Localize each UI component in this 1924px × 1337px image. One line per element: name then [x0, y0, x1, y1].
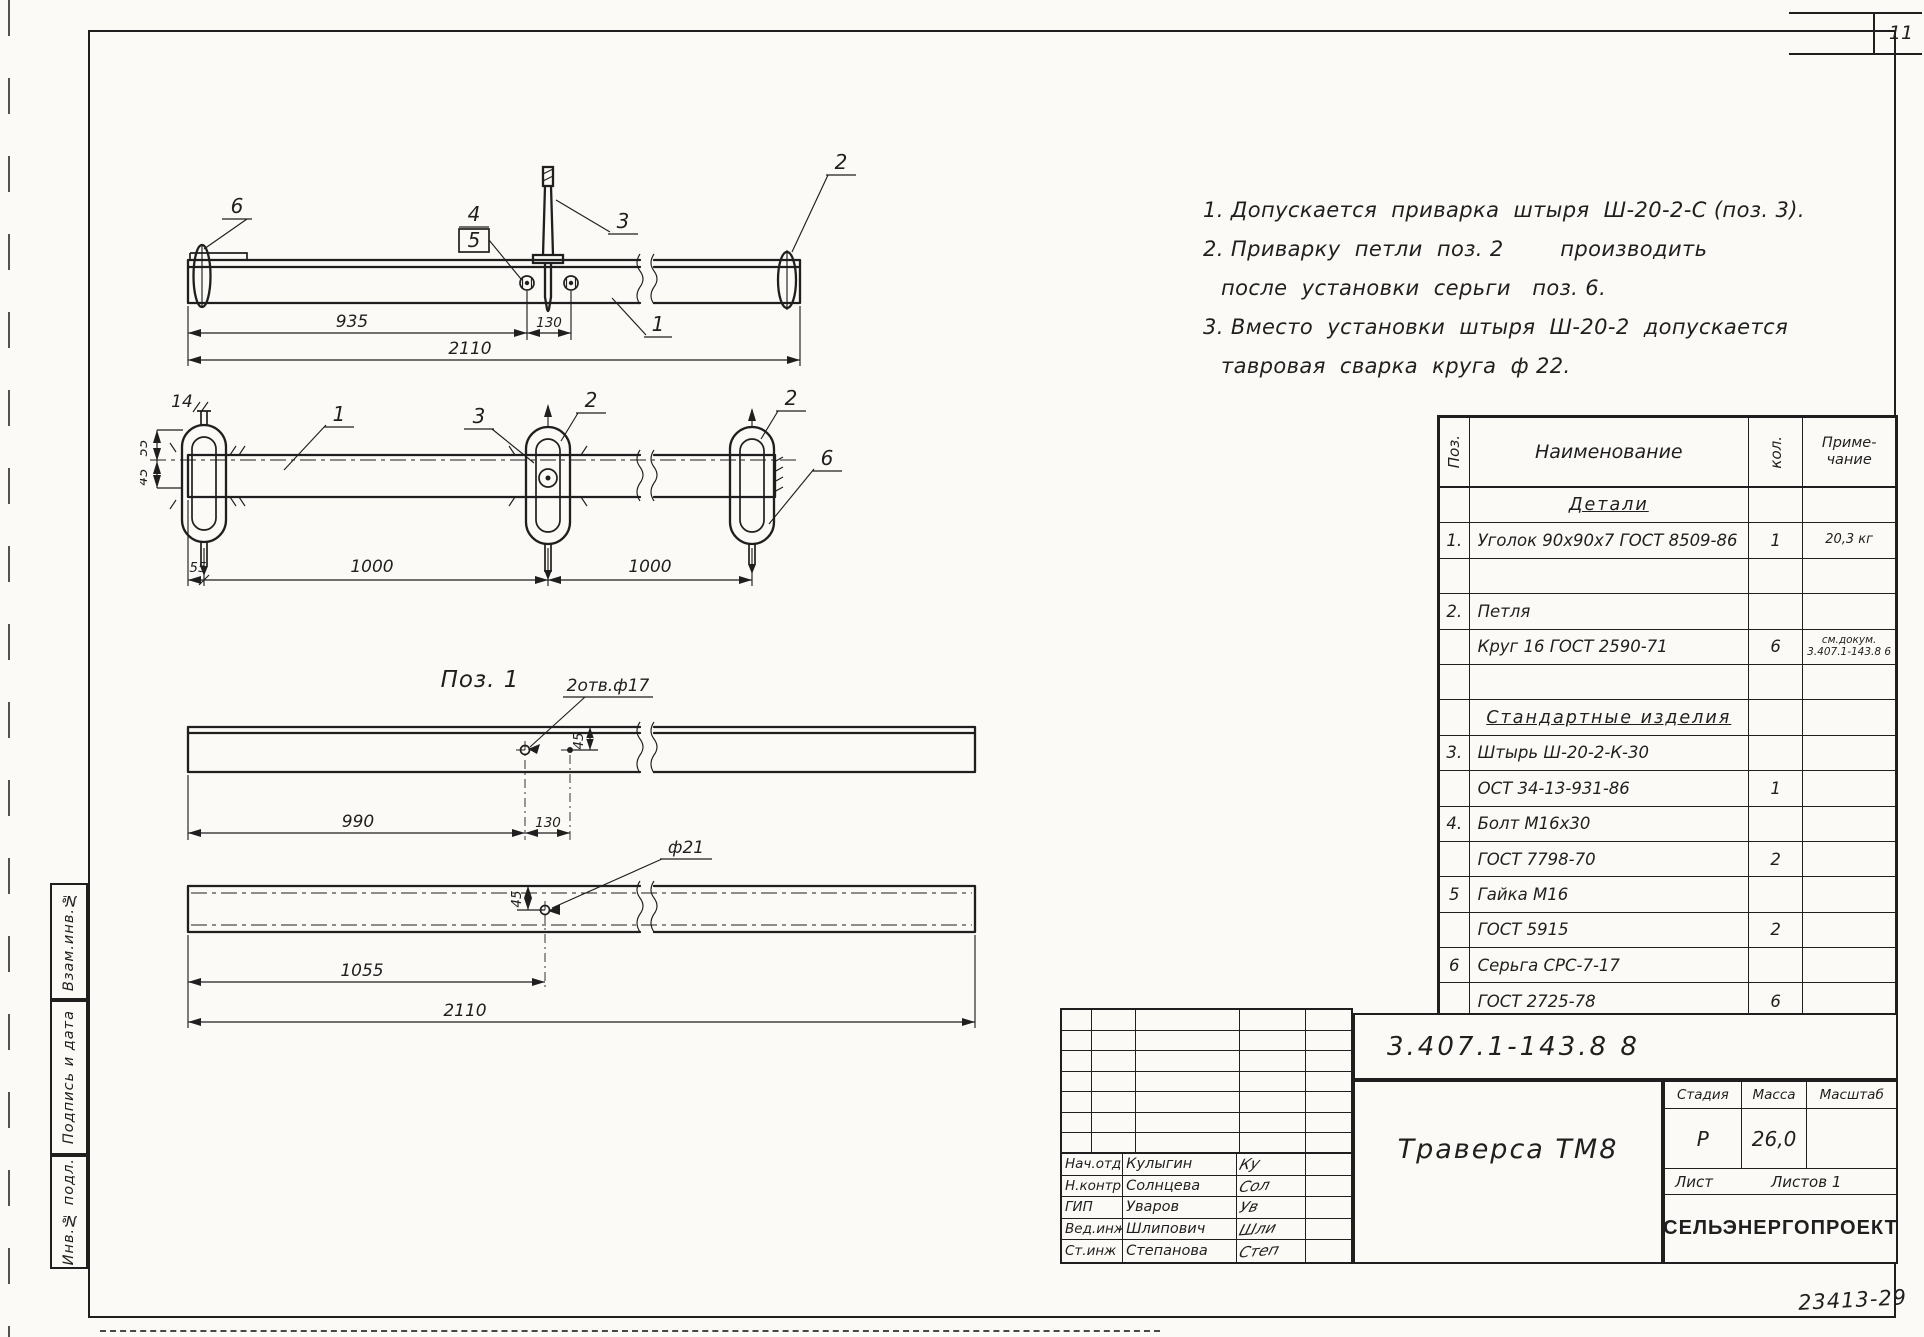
- revision-cell: [1306, 1113, 1351, 1133]
- parts-cell: [1749, 807, 1803, 841]
- title-block-right: Стадия Масса Масштаб Р 26,0 Лист Листов …: [1663, 1080, 1898, 1264]
- parts-cell: ГОСТ 5915: [1470, 913, 1749, 947]
- drawing-sheet: 11 Взам.инв.№ Подпись и дата Инв.№ подл.…: [0, 0, 1924, 1337]
- parts-cell: [1749, 877, 1803, 911]
- dim-14: 14: [171, 392, 193, 412]
- parts-cell: [1470, 559, 1749, 593]
- traverse-bar: [188, 450, 775, 501]
- signature-cell: [1306, 1154, 1351, 1175]
- dim-935: 935: [336, 312, 368, 332]
- parts-cell: Болт М16х30: [1470, 807, 1749, 841]
- revision-cell: [1136, 1113, 1240, 1133]
- pin-icon: [533, 167, 563, 311]
- callout-3: 3: [617, 209, 630, 233]
- revision-cell: [1240, 1010, 1306, 1030]
- parts-cell: 6: [1440, 948, 1470, 982]
- parts-cell: [1803, 594, 1895, 628]
- parts-cell: 1.: [1440, 523, 1470, 557]
- dim-130: 130: [536, 315, 562, 331]
- loop-right-icon: [730, 408, 783, 574]
- dim-2110: 2110: [443, 1001, 486, 1021]
- page-edge-perforation: [8, 0, 10, 1337]
- parts-cell: [1749, 488, 1803, 522]
- parts-cell: [1749, 700, 1803, 734]
- callout-2: 2: [585, 388, 598, 412]
- parts-row: Стандартные изделия: [1440, 700, 1895, 735]
- revision-cell: [1136, 1010, 1240, 1030]
- scale-value: [1807, 1109, 1896, 1168]
- parts-cell: Стандартные изделия: [1470, 700, 1749, 734]
- signature-row: Вед.инж.ШлиповичШли: [1062, 1219, 1351, 1241]
- parts-cell: [1440, 842, 1470, 876]
- revision-cell: [1062, 1133, 1092, 1154]
- parts-cell: Круг 16 ГОСТ 2590-71: [1470, 630, 1749, 664]
- revision-cell: [1062, 1010, 1092, 1030]
- stage-value: Р: [1665, 1109, 1742, 1168]
- parts-cell: [1803, 771, 1895, 805]
- revision-cell: [1136, 1072, 1240, 1092]
- traverse-bar: [188, 253, 800, 304]
- dim-55: 55: [189, 560, 206, 576]
- parts-row: 6Серьга СРС-7-17: [1440, 948, 1895, 983]
- parts-cell: [1440, 913, 1470, 947]
- revision-row: [1062, 1113, 1351, 1134]
- parts-cell: [1440, 665, 1470, 699]
- callout-6: 6: [231, 194, 244, 218]
- signature-cell: Нач.отд: [1062, 1154, 1123, 1175]
- scan-edge-artifact: [100, 1330, 1160, 1332]
- parts-row: ГОСТ 7798-702: [1440, 842, 1895, 877]
- dim-55-vert: 55: [140, 439, 151, 456]
- revision-cell: [1240, 1092, 1306, 1112]
- parts-cell: [1440, 700, 1470, 734]
- signature-cell: Солнцева: [1123, 1176, 1236, 1197]
- parts-row: 2.Петля: [1440, 594, 1895, 629]
- parts-table-rows: Детали1.Уголок 90х90х7 ГОСТ 8509-86120,3…: [1440, 488, 1895, 1019]
- angle-bar-bottom: [188, 881, 975, 932]
- parts-cell: [1749, 594, 1803, 628]
- callout-5: 5: [468, 228, 481, 252]
- revision-cell: [1062, 1072, 1092, 1092]
- parts-cell: [1470, 665, 1749, 699]
- traverse-drawing: 6 4 5 3 2 1 935 130 2110: [140, 140, 1020, 1040]
- sheet-row: Лист Листов 1: [1665, 1169, 1896, 1195]
- parts-row: 1.Уголок 90х90х7 ГОСТ 8509-86120,3 кг: [1440, 523, 1895, 558]
- mass-label: Масса: [1742, 1082, 1808, 1108]
- parts-row: 3.Штырь Ш-20-2-К-30: [1440, 736, 1895, 771]
- revision-grid: [1060, 1008, 1353, 1154]
- parts-cell: [1803, 559, 1895, 593]
- parts-row: ГОСТ 59152: [1440, 913, 1895, 948]
- parts-cell: Петля: [1470, 594, 1749, 628]
- parts-cell: [1803, 913, 1895, 947]
- corner-divider: [1873, 14, 1875, 53]
- revision-row: [1062, 1072, 1351, 1093]
- scale-label: Масштаб: [1807, 1082, 1896, 1108]
- parts-cell: [1440, 630, 1470, 664]
- detail-view: Поз. 1 2отв.ф17 45 990 130: [188, 667, 975, 1028]
- callout-6: 6: [821, 446, 834, 470]
- parts-cell: 2.: [1440, 594, 1470, 628]
- note-line: после установки серьги поз. 6.: [1203, 276, 1843, 300]
- parts-cell: ГОСТ 7798-70: [1470, 842, 1749, 876]
- revision-cell: [1092, 1010, 1136, 1030]
- dim-1055: 1055: [340, 961, 383, 981]
- shackle-icon: [194, 245, 211, 309]
- signature-cell: Степанова: [1123, 1240, 1236, 1262]
- revision-row: [1062, 1051, 1351, 1072]
- revision-cell: [1306, 1031, 1351, 1051]
- loop-icon: [778, 250, 796, 310]
- dim-45-vert: 45: [140, 468, 151, 485]
- signature-cell: Ст.инж: [1062, 1240, 1123, 1262]
- callout-2: 2: [835, 150, 848, 174]
- revision-cell: [1136, 1031, 1240, 1051]
- dim-1000: 1000: [628, 557, 671, 577]
- doc-number-cell: 3.407.1-143.8 8: [1353, 1013, 1898, 1080]
- parts-row: [1440, 559, 1895, 594]
- bolt-icon: [520, 276, 578, 290]
- parts-cell: [1803, 665, 1895, 699]
- parts-cell: [1803, 842, 1895, 876]
- parts-cell: 6: [1749, 630, 1803, 664]
- parts-cell: 4.: [1440, 807, 1470, 841]
- signature-cell: Кулыгин: [1123, 1154, 1236, 1175]
- signature-cell: Вед.инж.: [1062, 1219, 1123, 1240]
- signature-cell: Степ: [1237, 1240, 1306, 1262]
- loop-left-icon: [170, 411, 245, 576]
- dim-1000: 1000: [350, 557, 393, 577]
- margin-stamp-vzam: Взам.инв.№: [50, 883, 88, 1000]
- detail-label: Поз. 1: [441, 667, 520, 693]
- parts-cell: 3.: [1440, 736, 1470, 770]
- dim-45: 45: [509, 890, 525, 907]
- revision-cell: [1240, 1031, 1306, 1051]
- mass-value: 26,0: [1742, 1109, 1808, 1168]
- product-title-cell: Траверса ТМ8: [1353, 1080, 1663, 1264]
- parts-cell: [1803, 807, 1895, 841]
- stage-mass-scale-header: Стадия Масса Масштаб: [1665, 1082, 1896, 1109]
- parts-cell: Штырь Ш-20-2-К-30: [1470, 736, 1749, 770]
- parts-cell: [1440, 559, 1470, 593]
- parts-cell: 20,3 кг: [1803, 523, 1895, 557]
- sheets-label: Листов 1: [1713, 1173, 1841, 1191]
- dia-note: ф21: [668, 838, 704, 858]
- signature-row: Нач.отдКулыгинКу: [1062, 1154, 1351, 1176]
- callout-4: 4: [468, 202, 481, 226]
- parts-cell: ОСТ 34-13-931-86: [1470, 771, 1749, 805]
- note-line: тавровая сварка круга ф 22.: [1203, 354, 1843, 378]
- revision-cell: [1092, 1092, 1136, 1112]
- parts-cell: 2: [1749, 913, 1803, 947]
- doc-number: 3.407.1-143.8 8: [1355, 1032, 1640, 1062]
- parts-cell: [1803, 700, 1895, 734]
- parts-row: Детали: [1440, 488, 1895, 523]
- signature-row: Н.контр.СолнцеваСол: [1062, 1176, 1351, 1198]
- parts-cell: 2: [1749, 842, 1803, 876]
- revision-cell: [1240, 1051, 1306, 1071]
- revision-cell: [1306, 1133, 1351, 1154]
- revision-cell: [1062, 1113, 1092, 1133]
- callout-2: 2: [785, 386, 798, 410]
- parts-row: 5Гайка М16: [1440, 877, 1895, 912]
- callouts-front: 6 4 5 3 2 1: [204, 150, 856, 337]
- holes-note: 2отв.ф17: [567, 676, 650, 696]
- revision-cell: [1306, 1010, 1351, 1030]
- parts-table-header: Поз. Наименование кол. Приме-чание: [1440, 418, 1895, 488]
- revision-cell: [1240, 1133, 1306, 1154]
- parts-cell: Детали: [1470, 488, 1749, 522]
- dimensions-detail-top: 990 130: [188, 775, 570, 840]
- stage-label: Стадия: [1665, 1082, 1742, 1108]
- parts-cell: 5: [1440, 877, 1470, 911]
- parts-cell: см.докум.3.407.1-143.8 6: [1803, 630, 1895, 664]
- parts-cell: [1440, 771, 1470, 805]
- organization: СЕЛЬЭНЕРГОПРОЕКТ: [1665, 1195, 1896, 1262]
- signature-cell: Ку: [1237, 1154, 1306, 1175]
- callout-3: 3: [473, 404, 486, 428]
- signature-cell: Ув: [1237, 1197, 1306, 1218]
- dimensions-plan: 55 45 55 1000 1000: [140, 430, 752, 586]
- sheet-number-box: 11: [1789, 12, 1922, 55]
- parts-cell: Гайка М16: [1470, 877, 1749, 911]
- parts-cell: 1: [1749, 523, 1803, 557]
- revision-cell: [1240, 1113, 1306, 1133]
- revision-cell: [1092, 1133, 1136, 1154]
- parts-cell: [1803, 488, 1895, 522]
- revision-row: [1062, 1010, 1351, 1031]
- parts-cell: Серьга СРС-7-17: [1470, 948, 1749, 982]
- parts-cell: [1803, 736, 1895, 770]
- parts-table: Поз. Наименование кол. Приме-чание Детал…: [1437, 415, 1898, 1017]
- revision-cell: [1136, 1092, 1240, 1112]
- signature-cell: Уваров: [1123, 1197, 1236, 1218]
- revision-cell: [1062, 1051, 1092, 1071]
- note-line: 3. Вместо установки штыря Ш-20-2 допуска…: [1203, 315, 1843, 339]
- col-header-name: Наименование: [1470, 418, 1749, 486]
- parts-row: [1440, 665, 1895, 700]
- parts-cell: [1803, 877, 1895, 911]
- dim-2110: 2110: [448, 339, 491, 359]
- signature-cell: ГИП: [1062, 1197, 1123, 1218]
- sheet-label: Лист: [1665, 1173, 1713, 1191]
- signature-row: Ст.инжСтепановаСтеп: [1062, 1240, 1351, 1262]
- signature-cell: Шли: [1237, 1219, 1306, 1240]
- revision-cell: [1306, 1051, 1351, 1071]
- parts-cell: [1749, 948, 1803, 982]
- parts-row: Круг 16 ГОСТ 2590-716см.докум.3.407.1-14…: [1440, 630, 1895, 665]
- revision-cell: [1062, 1092, 1092, 1112]
- dim-45: 45: [571, 732, 587, 749]
- parts-cell: 1: [1749, 771, 1803, 805]
- plan-view: 14 1 3 2 2 6 55 45 55: [140, 386, 842, 586]
- revision-cell: [1136, 1051, 1240, 1071]
- margin-stamp-inv: Инв.№ подл.: [50, 1155, 88, 1269]
- parts-row: 4.Болт М16х30: [1440, 807, 1895, 842]
- revision-row: [1062, 1133, 1351, 1154]
- signature-cell: [1306, 1176, 1351, 1197]
- revision-cell: [1092, 1031, 1136, 1051]
- dim-990: 990: [342, 812, 374, 832]
- signature-cell: [1306, 1197, 1351, 1218]
- signature-cell: [1306, 1240, 1351, 1262]
- revision-cell: [1306, 1092, 1351, 1112]
- signature-cell: Сол: [1237, 1176, 1306, 1197]
- note-line: 2. Приварку петли поз. 2 производить: [1203, 237, 1843, 261]
- callout-1: 1: [652, 312, 665, 336]
- parts-cell: [1749, 736, 1803, 770]
- parts-cell: [1749, 665, 1803, 699]
- revision-cell: [1092, 1051, 1136, 1071]
- revision-cell: [1092, 1113, 1136, 1133]
- revision-cell: [1092, 1072, 1136, 1092]
- note-line: 1. Допускается приварка штыря Ш-20-2-С (…: [1203, 198, 1843, 222]
- parts-cell: [1803, 948, 1895, 982]
- signature-block: Нач.отдКулыгинКуН.контр.СолнцеваСолГИПУв…: [1060, 1152, 1353, 1264]
- front-view: 6 4 5 3 2 1 935 130 2110: [188, 150, 856, 366]
- margin-stamp-label: Взам.инв.№: [61, 891, 77, 991]
- signature-cell: Н.контр.: [1062, 1176, 1123, 1197]
- dim-130: 130: [535, 815, 561, 831]
- product-title: Траверса ТМ8: [1398, 1134, 1619, 1165]
- sheet-number: 11: [1881, 22, 1921, 44]
- revision-row: [1062, 1031, 1351, 1052]
- revision-row: [1062, 1092, 1351, 1113]
- col-header-qty: кол.: [1749, 418, 1803, 486]
- signature-cell: [1306, 1219, 1351, 1240]
- margin-stamp-label: Инв.№ подл.: [61, 1158, 77, 1265]
- margin-stamp-label: Подпись и дата: [61, 1010, 77, 1144]
- col-header-pos: Поз.: [1440, 418, 1470, 486]
- revision-cell: [1306, 1072, 1351, 1092]
- stage-mass-scale-values: Р 26,0: [1665, 1109, 1896, 1169]
- callout-1: 1: [333, 402, 346, 426]
- revision-cell: [1062, 1031, 1092, 1051]
- notes: 1. Допускается приварка штыря Ш-20-2-С (…: [1203, 198, 1843, 393]
- signature-cell: Шлипович: [1123, 1219, 1236, 1240]
- signature-row: ГИПУваровУв: [1062, 1197, 1351, 1219]
- revision-cell: [1136, 1133, 1240, 1154]
- margin-stamp-podpis: Подпись и дата: [50, 1000, 88, 1155]
- revision-cell: [1240, 1072, 1306, 1092]
- parts-cell: [1440, 488, 1470, 522]
- parts-cell: Уголок 90х90х7 ГОСТ 8509-86: [1470, 523, 1749, 557]
- parts-row: ОСТ 34-13-931-861: [1440, 771, 1895, 806]
- col-header-note: Приме-чание: [1803, 418, 1895, 486]
- parts-cell: [1749, 559, 1803, 593]
